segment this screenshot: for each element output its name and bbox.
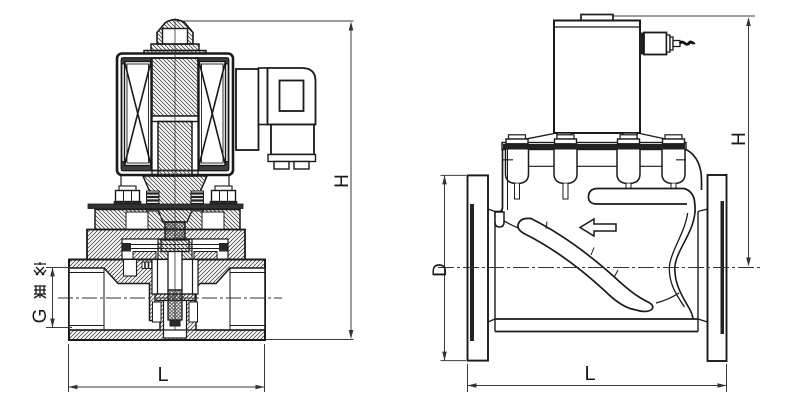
svg-text:H: H (729, 132, 750, 146)
svg-text:L: L (157, 364, 168, 386)
svg-text:G: G (30, 309, 51, 324)
svg-text:L: L (584, 363, 595, 385)
svg-text:H: H (332, 174, 353, 188)
svg-text:D: D (430, 263, 451, 277)
